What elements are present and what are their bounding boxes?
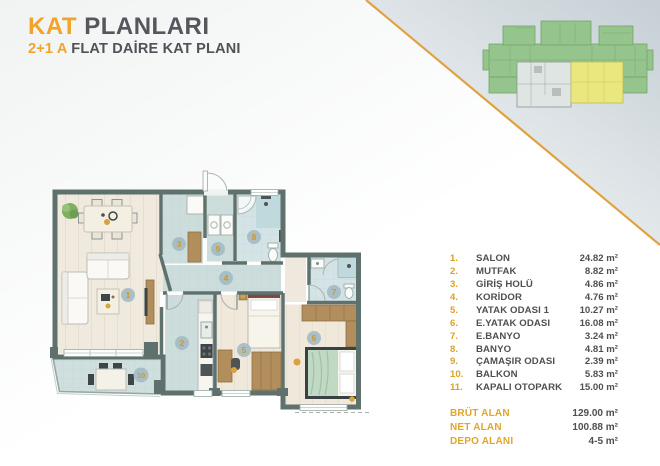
legend-row: 9.ÇAMAŞIR ODASI2.39 m² <box>450 356 618 369</box>
total-row: DEPO ALANI4-5 m² <box>450 435 618 449</box>
page-subtitle-accent: 2+1 A <box>28 41 67 57</box>
svg-text:2: 2 <box>180 338 185 348</box>
legend-room-name: BALKON <box>476 369 585 380</box>
legend-room-area: 2.39 m² <box>585 356 618 367</box>
legend-row: 1.SALON24.82 m² <box>450 252 618 265</box>
legend-room-name: E.YATAK ODASI <box>476 318 580 329</box>
legend-number: 8. <box>450 344 476 355</box>
legend-number: 3. <box>450 279 476 290</box>
legend-row: 8.BANYO4.81 m² <box>450 343 618 356</box>
badge-master-bedroom: 6 <box>307 331 321 345</box>
svg-text:7: 7 <box>332 287 337 297</box>
legend-room-name: MUTFAK <box>476 266 585 277</box>
legend-room-name: KORİDOR <box>476 292 585 303</box>
room-legend: 1.SALON24.82 m² 2.MUTFAK8.82 m² 3.GİRİŞ … <box>450 252 618 394</box>
legend-room-area: 24.82 m² <box>580 253 618 264</box>
legend-number: 1. <box>450 253 476 264</box>
svg-text:8: 8 <box>252 232 257 242</box>
badge-salon: 1 <box>121 288 135 302</box>
brochure-page: KAT PLANLARI 2+1 A FLAT DAİRE KAT PLANI <box>0 0 660 466</box>
legend-row: 6.E.YATAK ODASI16.08 m² <box>450 317 618 330</box>
legend-room-area: 4.76 m² <box>585 292 618 303</box>
legend-number: 7. <box>450 331 476 342</box>
legend-room-area: 8.82 m² <box>585 266 618 277</box>
total-value: 129.00 m² <box>572 408 618 419</box>
badge-ensuite-bath: 7 <box>327 285 341 299</box>
legend-room-area: 5.83 m² <box>585 369 618 380</box>
legend-row: 2.MUTFAK8.82 m² <box>450 265 618 278</box>
page-subtitle: 2+1 A FLAT DAİRE KAT PLANI <box>28 41 241 57</box>
floor-plan: 1 2 3 4 5 6 7 8 <box>20 150 450 460</box>
badge-entry-hall: 3 <box>172 237 186 251</box>
legend-number: 11. <box>450 382 476 393</box>
page-title-rest: PLANLARI <box>77 13 210 40</box>
badge-corridor: 4 <box>219 271 233 285</box>
badge-bathroom: 8 <box>247 230 261 244</box>
key-plan-highlighted-unit <box>571 62 623 103</box>
hall-cabinet <box>188 232 201 262</box>
total-label: NET ALAN <box>450 422 572 433</box>
legend-room-name: KAPALI OTOPARK <box>476 382 580 393</box>
legend-room-name: BANYO <box>476 344 585 355</box>
kitchen-counter <box>198 300 213 391</box>
legend-room-name: ÇAMAŞIR ODASI <box>476 356 585 367</box>
legend-row: 11.KAPALI OTOPARK15.00 m² <box>450 381 618 394</box>
legend-row: 3.GİRİŞ HOLÜ4.86 m² <box>450 278 618 291</box>
page-title: KAT PLANLARI <box>28 13 210 41</box>
legend-number: 9. <box>450 356 476 367</box>
total-value: 4-5 m² <box>589 436 618 447</box>
suite-entry-floor <box>285 257 306 302</box>
legend-number: 5. <box>450 305 476 316</box>
legend-number: 4. <box>450 292 476 303</box>
legend-room-name: YATAK ODASI 1 <box>476 305 580 316</box>
tv-unit <box>145 280 155 324</box>
legend-room-name: SALON <box>476 253 580 264</box>
badge-balcony: 10 <box>134 368 149 383</box>
badge-kitchen: 2 <box>175 336 189 350</box>
area-totals: BRÜT ALAN129.00 m² NET ALAN100.88 m² DEP… <box>450 407 618 448</box>
legend-room-area: 4.86 m² <box>585 279 618 290</box>
svg-text:3: 3 <box>177 239 182 249</box>
legend-room-name: E.BANYO <box>476 331 585 342</box>
legend-number: 2. <box>450 266 476 277</box>
legend-row: 10.BALKON5.83 m² <box>450 368 618 381</box>
total-value: 100.88 m² <box>572 422 618 433</box>
legend-row: 5.YATAK ODASI 110.27 m² <box>450 304 618 317</box>
key-plan-current-unit <box>517 62 571 107</box>
svg-text:4: 4 <box>224 273 229 283</box>
total-row: NET ALAN100.88 m² <box>450 421 618 435</box>
entrance-door-leaf <box>203 171 208 191</box>
legend-room-area: 4.81 m² <box>585 344 618 355</box>
svg-text:9: 9 <box>216 244 221 254</box>
total-label: DEPO ALANI <box>450 436 589 447</box>
legend-number: 10. <box>450 369 476 380</box>
svg-text:1: 1 <box>126 290 131 300</box>
legend-room-area: 10.27 m² <box>580 305 618 316</box>
svg-text:10: 10 <box>137 371 145 380</box>
hall-closet <box>187 196 204 214</box>
legend-row: 7.E.BANYO3.24 m² <box>450 330 618 343</box>
legend-room-name: GİRİŞ HOLÜ <box>476 279 585 290</box>
svg-text:5: 5 <box>242 345 247 355</box>
badge-bedroom1: 5 <box>237 343 251 357</box>
total-label: BRÜT ALAN <box>450 408 572 419</box>
page-subtitle-rest: FLAT DAİRE KAT PLANI <box>67 41 241 57</box>
legend-row: 4.KORİDOR4.76 m² <box>450 291 618 304</box>
badge-laundry: 9 <box>211 242 225 256</box>
total-row: BRÜT ALAN129.00 m² <box>450 407 618 421</box>
legend-room-area: 15.00 m² <box>580 382 618 393</box>
legend-number: 6. <box>450 318 476 329</box>
legend-room-area: 3.24 m² <box>585 331 618 342</box>
key-plan <box>478 14 658 114</box>
legend-room-area: 16.08 m² <box>580 318 618 329</box>
entrance-door-swing <box>208 173 228 191</box>
svg-text:6: 6 <box>312 333 317 343</box>
washer-dryer <box>208 215 233 235</box>
coffee-table <box>97 289 119 314</box>
page-title-accent: KAT <box>28 13 77 40</box>
